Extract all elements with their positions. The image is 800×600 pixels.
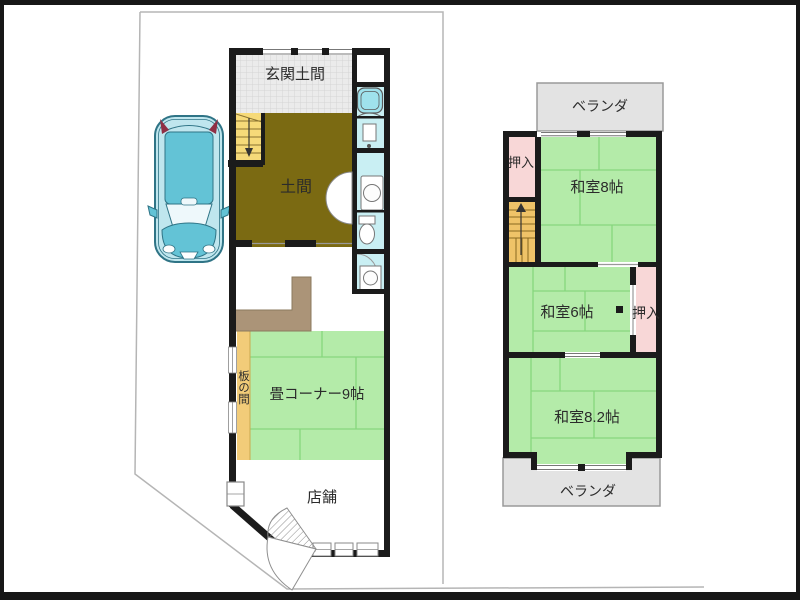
label-closet-upper: 押入 — [508, 155, 534, 170]
floor1-plan: 玄関土間 土間 板の間 畳コーナー9帖 店舗 — [227, 48, 390, 590]
window-top-wall — [263, 48, 352, 55]
window-top-wall-2f — [541, 131, 626, 137]
label-ita-no-ma: 板の間 — [237, 369, 250, 405]
shop-entrance-door — [267, 508, 316, 590]
stairs-2f — [509, 202, 535, 262]
label-doma: 土間 — [280, 178, 312, 196]
label-washitsu-8-2: 和室8.2帖 — [554, 409, 620, 426]
car-sunroof-notch — [181, 198, 197, 205]
floorplan-image: 玄関土間 土間 板の間 畳コーナー9帖 店舗 — [0, 0, 800, 600]
room-washitsu-8-2-bay — [537, 452, 626, 464]
car-headlight-left — [163, 245, 175, 253]
image-frame — [0, 0, 800, 600]
label-shop: 店舗 — [307, 489, 337, 506]
shop-windows-bottom — [313, 543, 378, 556]
car-roof — [165, 132, 213, 204]
kitchen-counter — [233, 277, 311, 331]
floor2-plan: ベランダ 押入 和室8帖 和室6帖 押入 和室8.2帖 ベランダ — [503, 83, 663, 506]
label-closet-middle: 押入 — [632, 305, 660, 321]
car-top-view-icon — [148, 116, 230, 262]
window-bottom-wall-2f — [537, 464, 626, 471]
window-left-wall-1 — [229, 347, 237, 373]
label-washitsu-8: 和室8帖 — [570, 179, 623, 196]
label-washitsu-6: 和室6帖 — [540, 304, 593, 321]
label-tatami-corner: 畳コーナー9帖 — [269, 386, 364, 403]
car-headlight-right — [203, 245, 215, 253]
label-veranda-top: ベランダ — [572, 98, 628, 114]
water-heater-icon — [363, 124, 376, 141]
label-veranda-bottom: ベランダ — [560, 483, 616, 499]
window-mid-wall-2f — [565, 353, 600, 358]
sink-bowl-icon — [364, 185, 381, 202]
genkan-checker-pattern — [236, 55, 352, 113]
label-genkan-doma: 玄関土間 — [265, 66, 325, 83]
shop-window-left — [227, 482, 244, 506]
toilet-tank — [359, 216, 375, 224]
toilet-icon — [360, 224, 375, 244]
floorplan-svg: 玄関土間 土間 板の間 畳コーナー9帖 店舗 — [0, 0, 800, 600]
window-left-wall-2 — [229, 402, 237, 433]
stairs-1f — [236, 113, 263, 160]
washing-machine-drum — [364, 271, 378, 285]
water-heater-knob — [367, 144, 371, 148]
